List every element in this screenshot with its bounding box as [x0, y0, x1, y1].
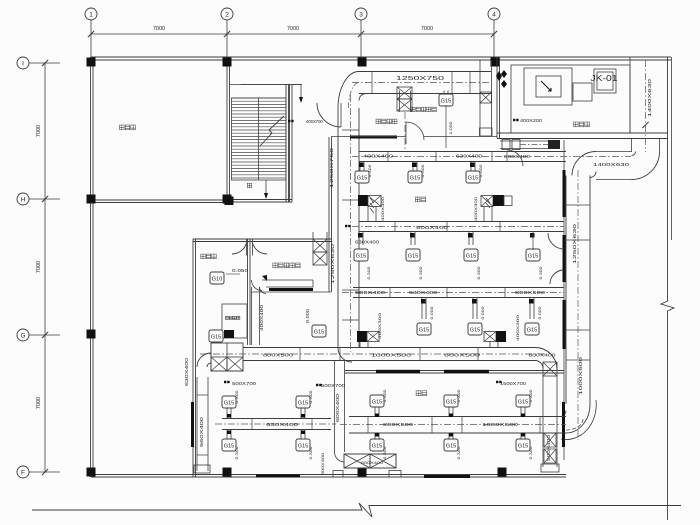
svg-text:G15: G15 [224, 444, 235, 450]
svg-text:G15: G15 [372, 444, 383, 450]
svg-text:7000: 7000 [421, 26, 433, 32]
svg-text:600X400: 600X400 [335, 393, 340, 422]
svg-text:1500X700: 1500X700 [500, 381, 527, 386]
svg-text:G15: G15 [408, 254, 419, 260]
svg-text:0.300: 0.300 [421, 165, 425, 178]
svg-text:G15: G15 [446, 400, 457, 406]
svg-text:7000: 7000 [36, 125, 42, 137]
svg-text:G15: G15 [356, 254, 367, 260]
svg-text:G15: G15 [518, 444, 529, 450]
svg-text:800X400: 800X400 [504, 154, 530, 160]
svg-text:I: I [22, 60, 24, 67]
svg-text:0.300: 0.300 [529, 447, 533, 460]
svg-text:500X700: 500X700 [232, 381, 257, 386]
svg-text:400X300: 400X300 [377, 312, 382, 339]
svg-text:800X500: 800X500 [515, 290, 545, 296]
svg-text:G15: G15 [410, 176, 421, 182]
svg-text:1250X750: 1250X750 [329, 147, 334, 188]
svg-text:400X400: 400X400 [259, 304, 264, 331]
svg-text:0.300: 0.300 [457, 390, 461, 403]
svg-text:1400X630: 1400X630 [647, 78, 652, 117]
svg-text:G15: G15 [446, 444, 457, 450]
svg-text:1000X500: 1000X500 [371, 353, 412, 359]
svg-text:3: 3 [359, 11, 363, 18]
svg-text:0.300: 0.300 [235, 391, 239, 404]
svg-text:500X400: 500X400 [355, 290, 385, 296]
svg-text:1250X750: 1250X750 [396, 76, 444, 82]
svg-text:H: H [21, 196, 26, 203]
svg-text:1000X500: 1000X500 [578, 356, 583, 395]
svg-text:0.300: 0.300 [367, 267, 371, 280]
svg-text:0.300: 0.300 [539, 267, 543, 280]
svg-text:G15: G15 [518, 400, 529, 406]
svg-text:G: G [20, 332, 25, 339]
svg-text:4: 4 [492, 11, 496, 18]
svg-text:0.300: 0.300 [383, 447, 387, 460]
svg-text:0.000: 0.000 [538, 307, 542, 320]
svg-text:7000: 7000 [153, 26, 165, 32]
svg-text:G15: G15 [419, 328, 430, 334]
svg-text:G15: G15 [372, 400, 383, 406]
svg-text:800X500: 800X500 [383, 422, 413, 428]
svg-text:600X400: 600X400 [361, 460, 384, 465]
svg-text:0.300: 0.300 [383, 390, 387, 403]
svg-text:0.300: 0.300 [309, 447, 313, 460]
svg-text:0.300: 0.300 [457, 447, 461, 460]
svg-text:7000: 7000 [36, 261, 42, 273]
svg-text:630X400: 630X400 [184, 357, 189, 386]
svg-text:G15: G15 [468, 176, 479, 182]
svg-text:0.000: 0.000 [481, 307, 485, 320]
svg-text:1400X630: 1400X630 [593, 162, 630, 168]
svg-text:1000X500: 1000X500 [482, 422, 519, 428]
svg-text:400X400: 400X400 [363, 154, 393, 160]
svg-text:1250X630: 1250X630 [572, 223, 577, 264]
svg-text:560X400: 560X400 [199, 416, 204, 447]
svg-text:630X400: 630X400 [266, 422, 299, 428]
svg-text:0.300: 0.300 [368, 165, 372, 178]
svg-text:1: 1 [89, 11, 93, 18]
svg-text:G15: G15 [528, 254, 539, 260]
svg-text:500X400: 500X400 [321, 453, 325, 475]
svg-text:G15: G15 [211, 335, 222, 341]
svg-text:1.000: 1.000 [449, 122, 453, 135]
svg-text:0.300: 0.300 [309, 391, 313, 404]
svg-text:800X500: 800X500 [263, 353, 293, 359]
svg-text:G15: G15 [470, 328, 481, 334]
svg-text:0.300: 0.300 [419, 267, 423, 280]
svg-text:JK-01: JK-01 [591, 74, 619, 83]
svg-text:630X400: 630X400 [409, 290, 437, 296]
svg-text:G15: G15 [441, 99, 452, 105]
svg-text:400X700: 400X700 [306, 119, 323, 124]
svg-text:400X200: 400X200 [520, 118, 543, 123]
svg-text:630X400: 630X400 [456, 154, 482, 160]
svg-text:G15: G15 [224, 401, 235, 407]
svg-text:F: F [21, 469, 25, 476]
svg-text:7000: 7000 [36, 397, 42, 409]
svg-text:G15: G15 [357, 176, 368, 182]
svg-text:G10: G10 [212, 277, 223, 283]
svg-text:G15: G15 [527, 328, 538, 334]
svg-text:500X400: 500X400 [416, 225, 449, 231]
svg-text:G15: G15 [298, 401, 309, 407]
svg-text:G15: G15 [466, 254, 477, 260]
svg-text:1250X630: 1250X630 [330, 243, 335, 284]
svg-text:G15: G15 [298, 444, 309, 450]
svg-text:0.300: 0.300 [529, 390, 533, 403]
svg-text:0.300: 0.300 [479, 165, 483, 178]
svg-text:400X300: 400X300 [515, 314, 520, 341]
svg-text:500X700: 500X700 [321, 383, 346, 388]
svg-text:0.000: 0.000 [430, 307, 434, 320]
svg-text:0.300: 0.300 [477, 267, 481, 280]
svg-text:G15: G15 [314, 330, 325, 336]
svg-text:0.300: 0.300 [235, 447, 239, 460]
svg-text:0.050: 0.050 [232, 268, 249, 273]
svg-text:400X300: 400X300 [473, 196, 478, 221]
svg-text:0.000: 0.000 [305, 308, 310, 323]
svg-text:2: 2 [225, 11, 229, 18]
svg-text:7000: 7000 [287, 26, 299, 32]
svg-text:600X500: 600X500 [444, 353, 481, 359]
